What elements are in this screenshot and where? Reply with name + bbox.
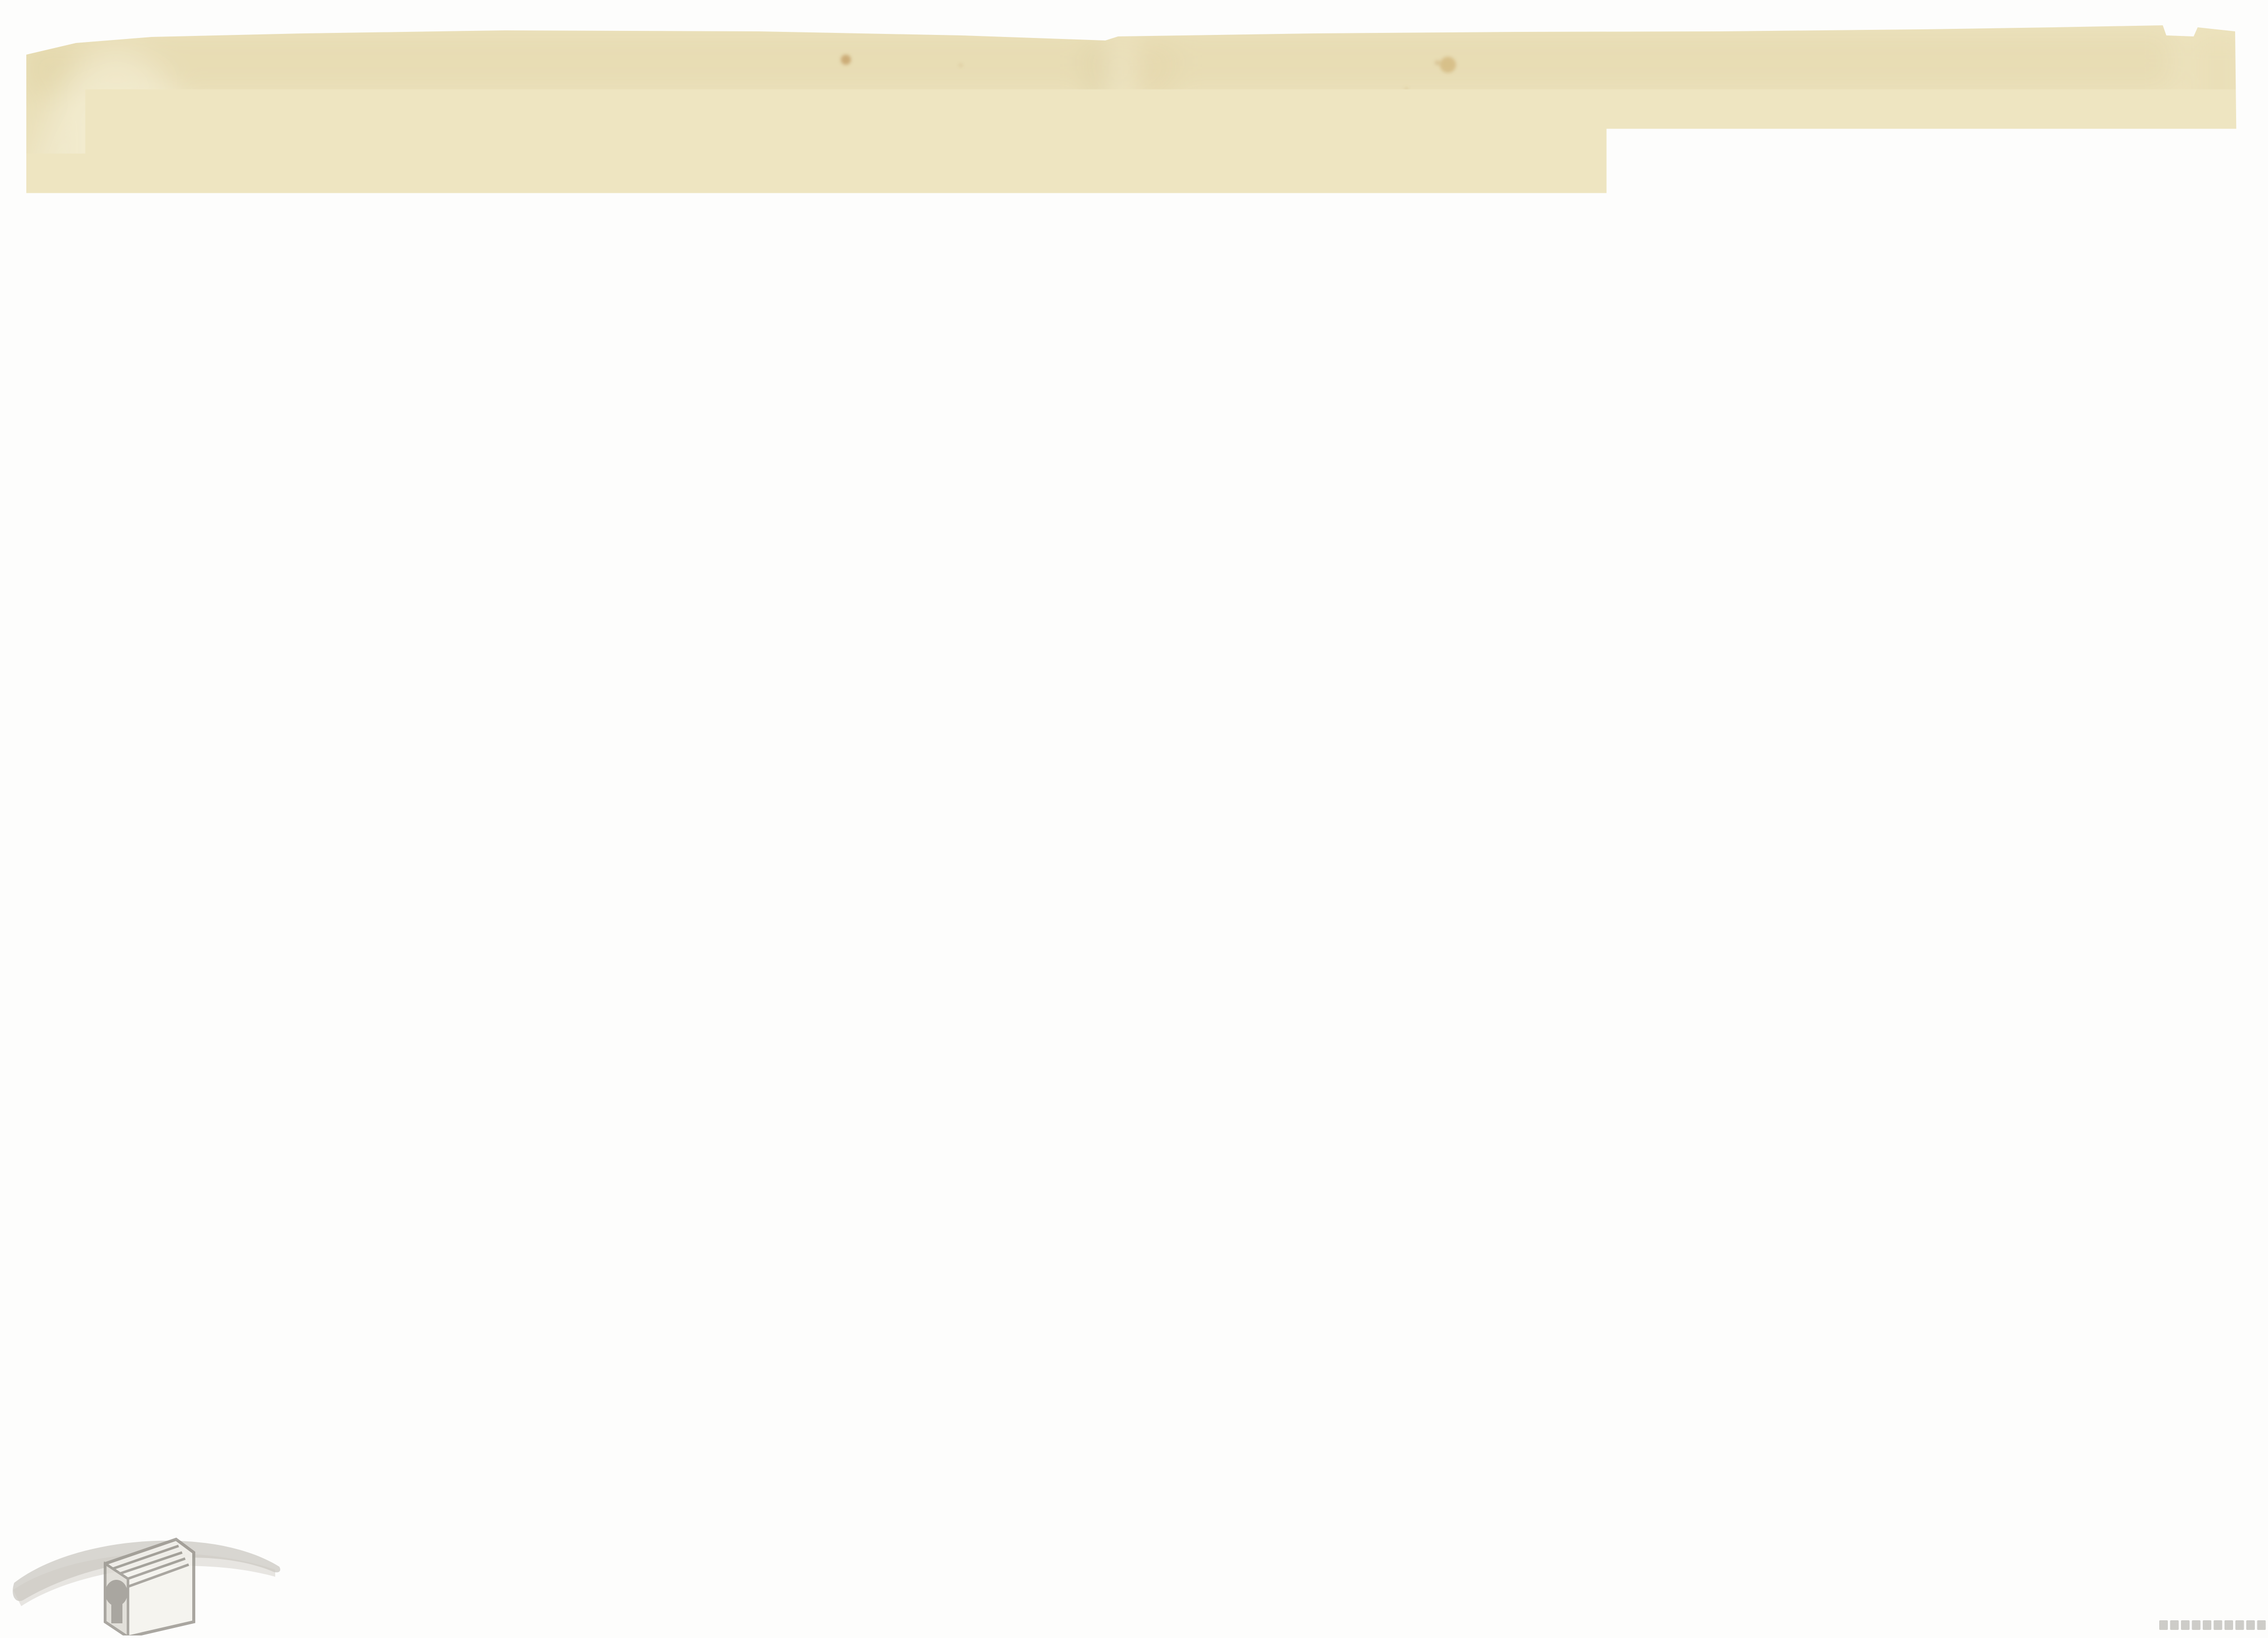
svg-text:375: 375	[1441, 767, 1512, 815]
svg-text:3983: 3983	[610, 834, 673, 866]
svg-text:3.056: 3.056	[700, 834, 771, 866]
svg-text:1340: 1340	[965, 834, 1029, 866]
svg-text:10: 10	[982, 387, 1012, 416]
svg-text:No 42: No 42	[900, 164, 976, 198]
svg-text:7500: 7500	[342, 871, 401, 901]
svg-text:3303: 3303	[1260, 865, 1318, 895]
svg-text:1693: 1693	[432, 834, 495, 866]
svg-text:255: 255	[1902, 824, 1950, 856]
svg-text:3599: 3599	[876, 834, 939, 866]
svg-text:375: 375	[1978, 766, 2049, 814]
svg-text:2000: 2000	[341, 834, 405, 866]
svg-text:10: 10	[1902, 376, 1934, 408]
svg-text:2210: 2210	[1264, 824, 1328, 856]
svg-text:214: 214	[519, 770, 590, 818]
svg-text:5056: 5056	[166, 834, 229, 866]
svg-text:10.913: 10.913	[700, 871, 780, 901]
svg-text:329: 329	[340, 770, 411, 818]
svg-text:1194: 1194	[1442, 824, 1503, 856]
svg-text:5.688: 5.688	[432, 871, 497, 901]
svg-text:447: 447	[521, 834, 569, 866]
svg-text:230: 230	[429, 770, 500, 818]
svg-text:254: 254	[1274, 769, 1346, 817]
svg-text:10: 10	[716, 388, 745, 417]
svg-text:6636: 6636	[254, 834, 317, 866]
svg-text:375: 375	[698, 770, 768, 818]
svg-text:3999: 3999	[1973, 824, 2036, 856]
svg-text:1599: 1599	[521, 871, 580, 901]
svg-text:No 11: No 11	[1206, 157, 1280, 193]
svg-text:875: 875	[1715, 824, 1763, 856]
svg-text:128: 128	[1718, 767, 1789, 815]
svg-text:3.125: 3.125	[1714, 862, 1780, 892]
svg-text:375: 375	[874, 770, 945, 818]
svg-text:36: 36	[2044, 1505, 2097, 1559]
svg-text:375: 375	[252, 770, 323, 818]
svg-text:0738: 0738	[531, 1526, 630, 1578]
